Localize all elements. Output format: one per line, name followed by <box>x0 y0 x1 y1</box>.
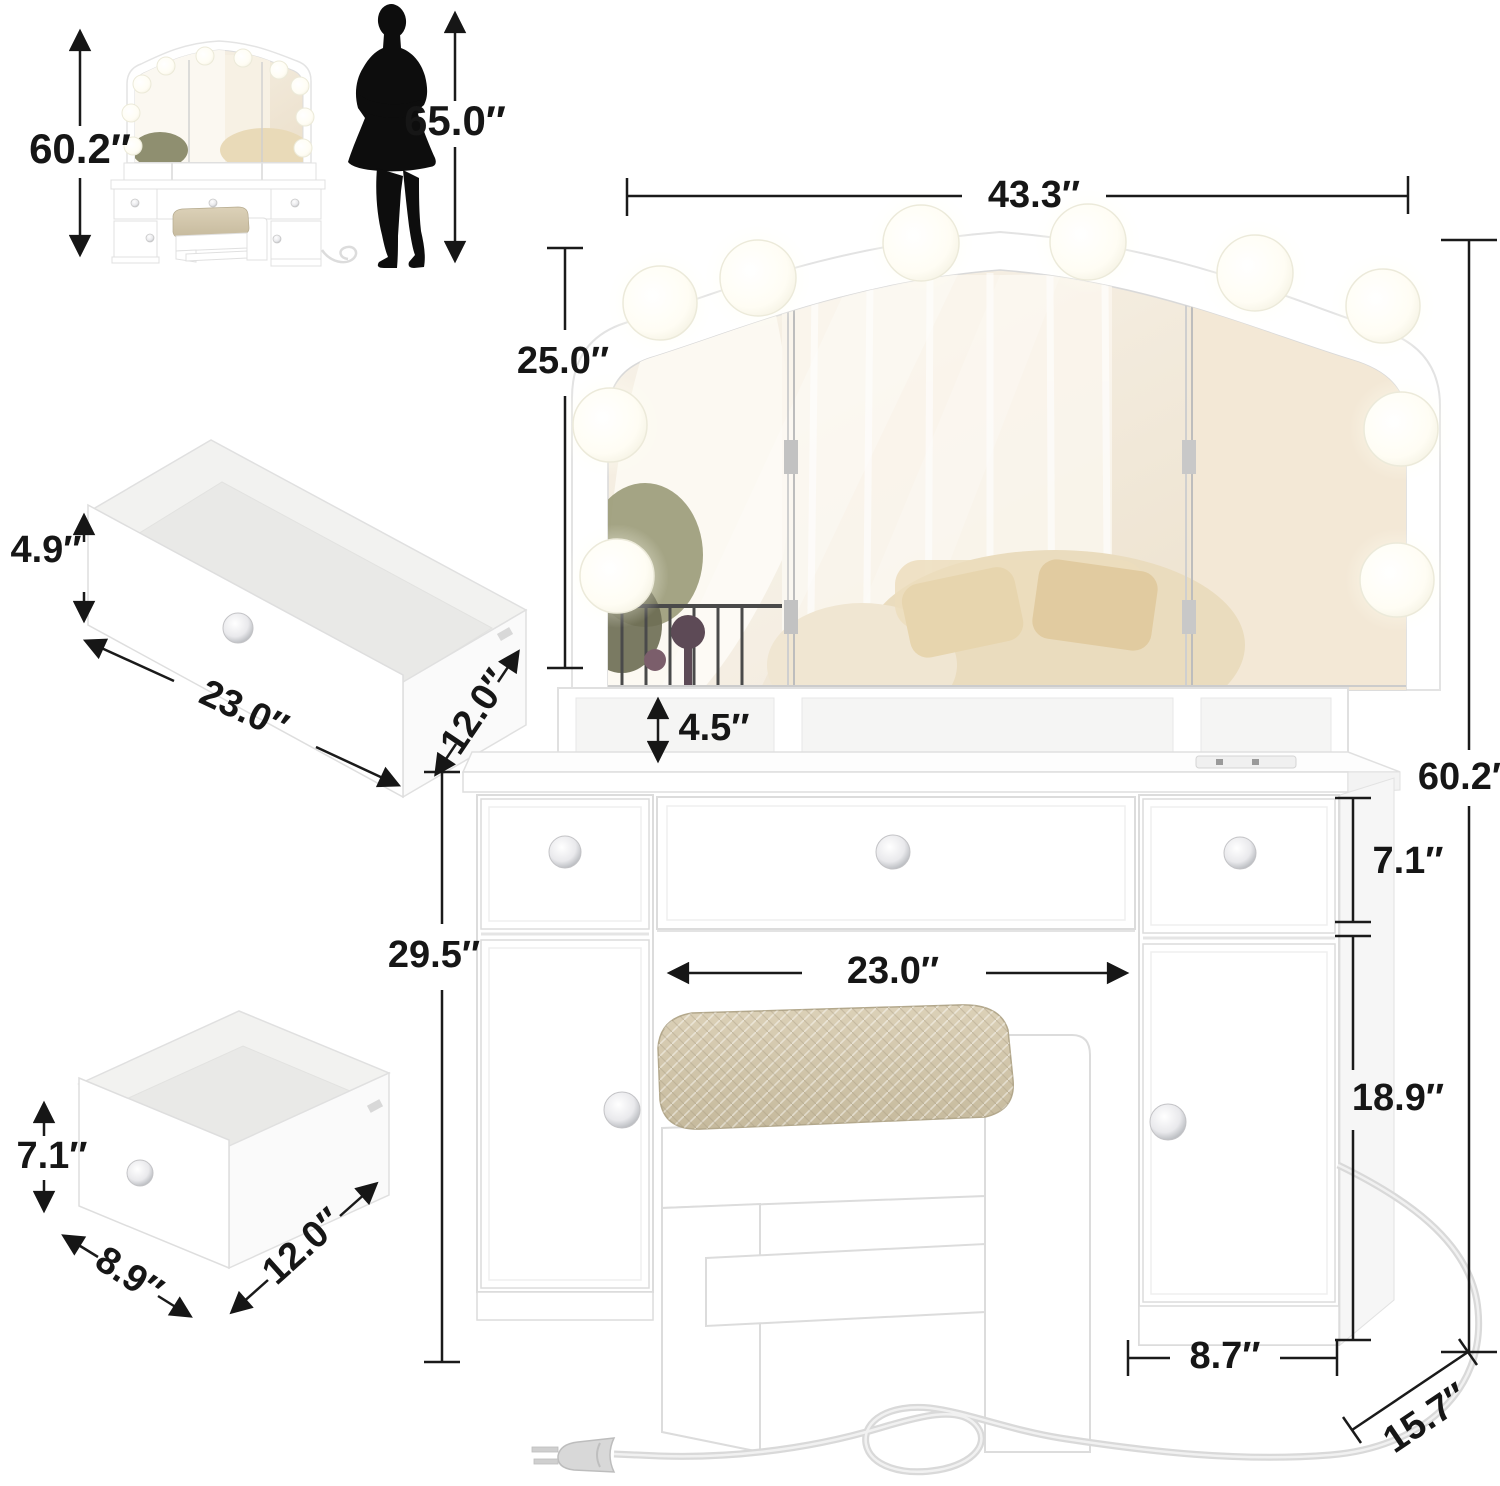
dim-label: 15.7″ <box>1376 1375 1476 1461</box>
dim-vanity-depth: 15.7″ <box>1343 1339 1477 1462</box>
dim-tabletop-height: 29.5″ <box>388 772 480 1362</box>
dim-label: 60.2″ <box>1418 756 1500 798</box>
dim-label: 4.5″ <box>678 707 749 749</box>
mirror-reflection <box>582 270 1410 740</box>
dim-label: 43.3″ <box>988 174 1080 216</box>
thumbnail-power-cord <box>322 247 356 262</box>
dim-label: 7.1″ <box>16 1135 87 1177</box>
stool-left-leg <box>662 1204 760 1452</box>
dim-label: 8.9″ <box>88 1238 170 1312</box>
dim-label: 25.0″ <box>517 340 609 382</box>
thumbnail-vanity <box>111 41 356 266</box>
light-bulb <box>1331 254 1435 358</box>
dim-label: 18.9″ <box>1352 1077 1444 1119</box>
dim-legroom-width: 23.0″ <box>670 950 1126 992</box>
stool-apron <box>662 1116 985 1208</box>
crystal-knob <box>127 1160 153 1186</box>
crystal-knob <box>1224 837 1256 869</box>
product-dimension-diagram: 60.2″ 65.0″ 43.3″ 25.0″ 4.5″ <box>0 0 1500 1486</box>
stool-stretcher <box>706 1244 985 1326</box>
light-bulb <box>868 190 974 296</box>
light-bulb <box>1202 220 1308 326</box>
crystal-knob <box>223 613 253 643</box>
dim-wide-drawer-height: 4.9″ <box>10 516 84 620</box>
light-bulb <box>558 373 662 477</box>
tabletop <box>463 752 1400 792</box>
person-legs <box>376 168 425 268</box>
dim-small-drawer-height: 7.1″ <box>16 1104 87 1210</box>
power-plug <box>532 1438 614 1472</box>
light-bulb <box>705 225 811 331</box>
dim-label: 65.0″ <box>404 97 506 144</box>
left-pedestal <box>477 795 653 1320</box>
right-pedestal <box>1139 795 1339 1345</box>
crystal-knob <box>604 1092 640 1128</box>
dim-label: 29.5″ <box>388 934 480 976</box>
dim-label: 60.2″ <box>29 125 131 172</box>
dim-small-drawer-width: 8.9″ <box>64 1236 190 1316</box>
light-bulb <box>608 251 712 355</box>
light-bulb <box>1349 377 1453 481</box>
stool-cushion <box>658 1005 1013 1129</box>
crystal-knob <box>549 836 581 868</box>
light-bulb <box>565 524 669 628</box>
dim-label: 23.0″ <box>847 950 939 992</box>
dim-vanity-width: 43.3″ <box>627 174 1408 216</box>
crystal-knob <box>1150 1104 1186 1140</box>
power-outlet-strip <box>1196 756 1296 768</box>
dim-label: 4.9″ <box>10 529 81 571</box>
light-bulb <box>1345 528 1449 632</box>
stool <box>658 1005 1090 1452</box>
center-drawer <box>657 797 1135 931</box>
crystal-knob <box>876 835 910 869</box>
dim-label: 8.7″ <box>1189 1335 1260 1377</box>
dim-label: 7.1″ <box>1372 840 1443 882</box>
